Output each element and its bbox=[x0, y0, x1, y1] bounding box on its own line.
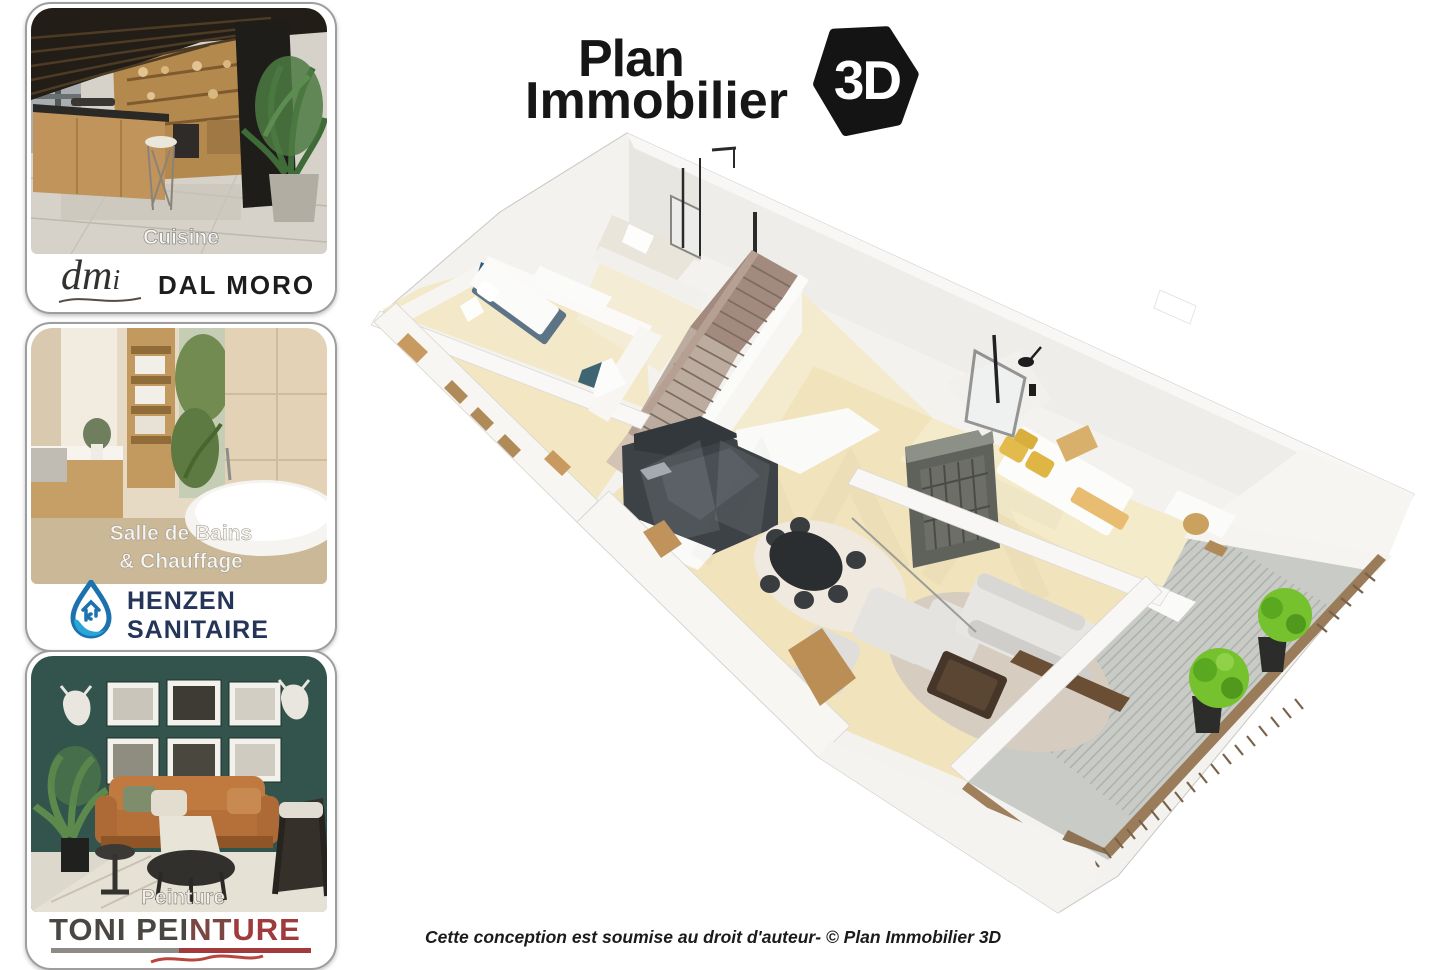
svg-text:Salle de Bains: Salle de Bains bbox=[110, 522, 252, 545]
svg-text:Peinture: Peinture bbox=[141, 886, 225, 909]
svg-text:Cuisine: Cuisine bbox=[143, 226, 219, 249]
svg-text:& Chauffage: & Chauffage bbox=[119, 550, 243, 573]
